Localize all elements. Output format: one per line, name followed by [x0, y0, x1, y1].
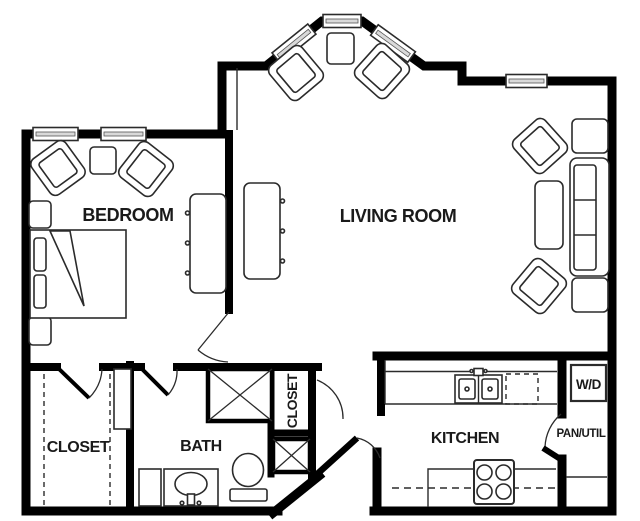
burner-icon — [496, 465, 511, 480]
kitchen-label: KITCHEN — [431, 430, 499, 447]
utility-chase — [273, 439, 310, 472]
hall-closet-door — [317, 380, 343, 419]
closet-shelf — [114, 369, 131, 429]
bedroom-label: BEDROOM — [82, 205, 173, 225]
sofa — [570, 158, 609, 276]
pillow — [34, 275, 46, 308]
bath-fixtures — [139, 454, 267, 507]
shower — [208, 369, 272, 421]
bedroom-window-1 — [33, 128, 78, 141]
end-table — [572, 278, 608, 312]
burner-icon — [477, 465, 492, 480]
hall-closet-label: CLOSET — [284, 373, 300, 428]
coffee-table — [535, 181, 563, 249]
closet-label: CLOSET — [47, 439, 110, 456]
interior-walls — [26, 134, 612, 511]
toilet — [230, 454, 267, 502]
armchair — [510, 116, 571, 177]
dishwasher — [506, 374, 538, 404]
closet-door — [58, 368, 102, 398]
bath-door — [141, 368, 177, 395]
bed — [30, 230, 126, 318]
bedroom-furniture — [28, 138, 226, 345]
burner-icon — [496, 484, 511, 499]
living-window-right — [506, 75, 547, 88]
kitchen-sink — [455, 369, 502, 404]
console — [244, 183, 285, 279]
floor-plan-svg: BEDROOM LIVING ROOM CLOSET BATH KITCHEN … — [0, 0, 640, 521]
bath-label: BATH — [180, 438, 222, 455]
living-room-furniture — [244, 33, 609, 316]
armchair — [116, 139, 176, 200]
bay-table — [327, 33, 354, 64]
pillow — [34, 238, 46, 271]
side-table — [90, 147, 116, 174]
bay-window-center — [323, 15, 361, 28]
armchair — [28, 138, 88, 198]
armchair — [509, 256, 569, 317]
end-table — [572, 119, 608, 153]
wall-entry-chamfer — [273, 476, 319, 513]
faucet-icon — [474, 369, 483, 376]
floor-plan: BEDROOM LIVING ROOM CLOSET BATH KITCHEN … — [0, 0, 640, 521]
living-room-label: LIVING ROOM — [340, 206, 457, 226]
dresser — [186, 194, 227, 293]
vanity-sink — [164, 469, 218, 506]
closet-details — [44, 369, 131, 505]
burner-icon — [477, 484, 492, 499]
washer-dryer-label: W/D — [576, 377, 602, 392]
nightstand — [29, 201, 51, 228]
nightstand — [29, 317, 51, 345]
pantry-utility-label: PAN/UTIL — [557, 428, 606, 440]
stove — [474, 460, 514, 504]
bedroom-door — [198, 312, 229, 362]
vanity-cabinet — [139, 469, 161, 506]
bedroom-window-2 — [101, 128, 146, 141]
entry-door — [315, 438, 380, 476]
